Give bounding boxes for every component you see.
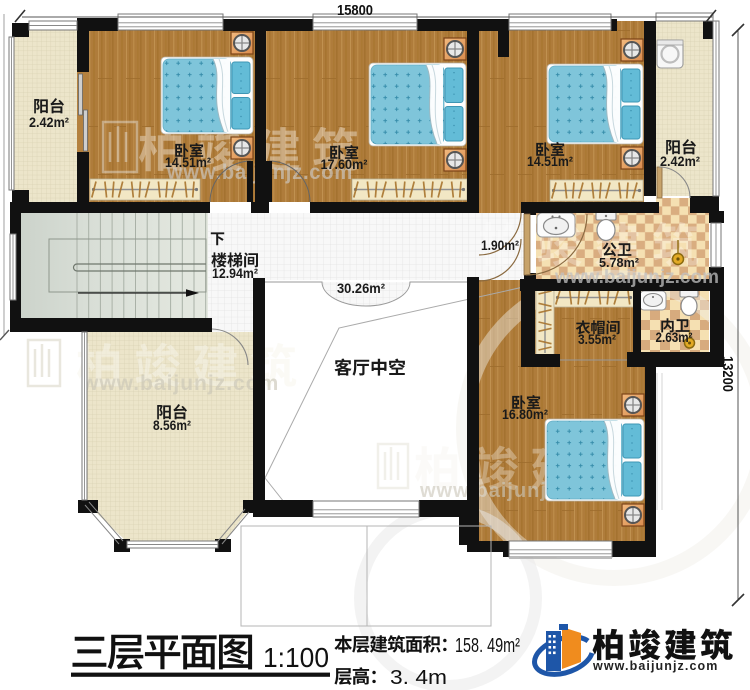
svg-text:www.baijunjz.com: www.baijunjz.com [81, 372, 279, 395]
svg-text:16.80m²: 16.80m² [502, 406, 548, 422]
svg-text:2.42m²: 2.42m² [29, 114, 69, 130]
svg-text:14.51m²: 14.51m² [527, 153, 573, 169]
svg-text:15800: 15800 [337, 2, 373, 19]
svg-text:2.63m²: 2.63m² [656, 329, 693, 345]
svg-text:www.baijunjz.com: www.baijunjz.com [554, 267, 719, 288]
svg-text:158. 49m²: 158. 49m² [455, 635, 520, 657]
svg-text:13200: 13200 [719, 356, 736, 392]
svg-text:14.51m²: 14.51m² [165, 154, 211, 170]
svg-text:1:100: 1:100 [263, 642, 329, 673]
svg-text:www.baijunjz.com: www.baijunjz.com [592, 659, 718, 673]
svg-text:2.42m²: 2.42m² [660, 153, 700, 169]
svg-text:30.26m²: 30.26m² [337, 280, 385, 296]
svg-text:17.60m²: 17.60m² [321, 156, 368, 172]
svg-text:3. 4m: 3. 4m [390, 667, 447, 689]
svg-text:8.56m²: 8.56m² [153, 417, 191, 433]
svg-text:1.90m²: 1.90m² [481, 237, 519, 253]
svg-text:3.55m²: 3.55m² [578, 331, 616, 347]
svg-text:12.94m²: 12.94m² [212, 265, 258, 281]
svg-text:5.78m²: 5.78m² [599, 255, 640, 270]
